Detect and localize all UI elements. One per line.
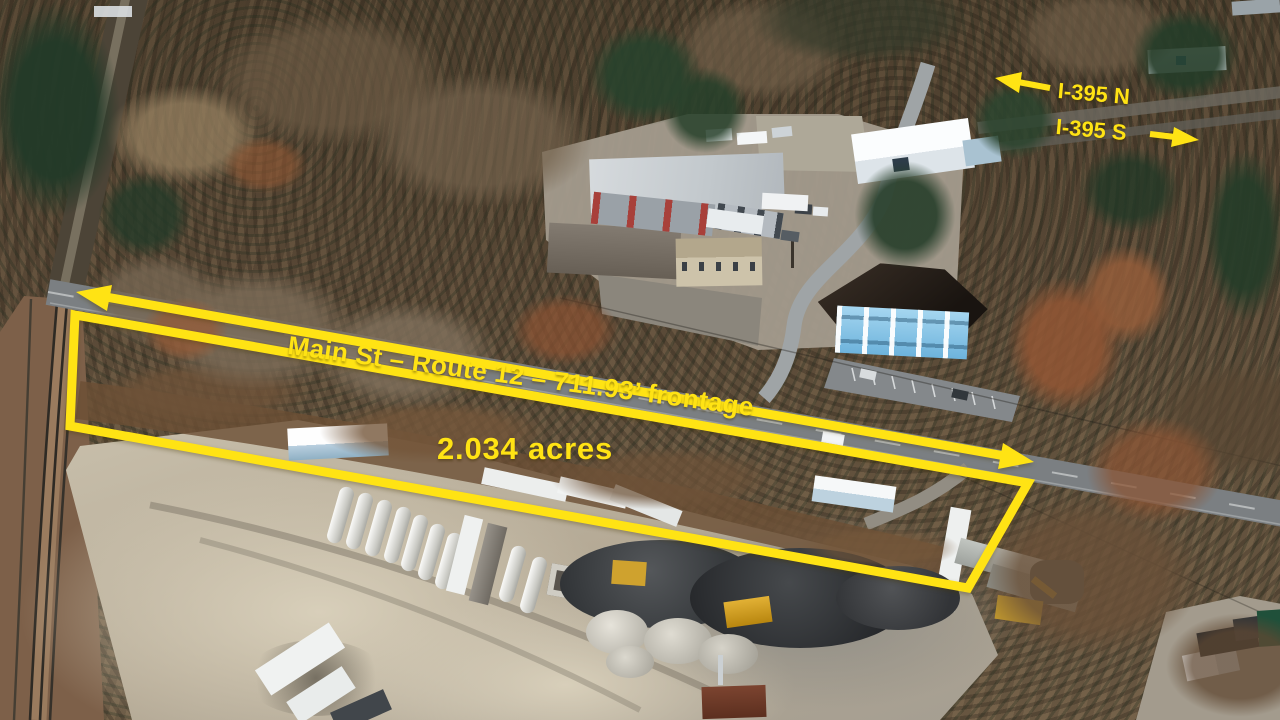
annotation-overlay — [0, 0, 1280, 720]
i395-south-arrow-line — [1150, 134, 1175, 137]
frontage-arrow-left-icon — [76, 285, 112, 311]
i395-north-arrow-line — [1018, 82, 1050, 88]
aerial-photo: Main St – Route 12 – 711.93’ frontage 2.… — [0, 0, 1280, 720]
frontage-arrow-right-icon — [998, 443, 1034, 469]
i395-north-arrow-icon — [995, 72, 1022, 93]
area-label: 2.034 acres — [437, 431, 613, 467]
i395-south-arrow-icon — [1171, 127, 1199, 147]
